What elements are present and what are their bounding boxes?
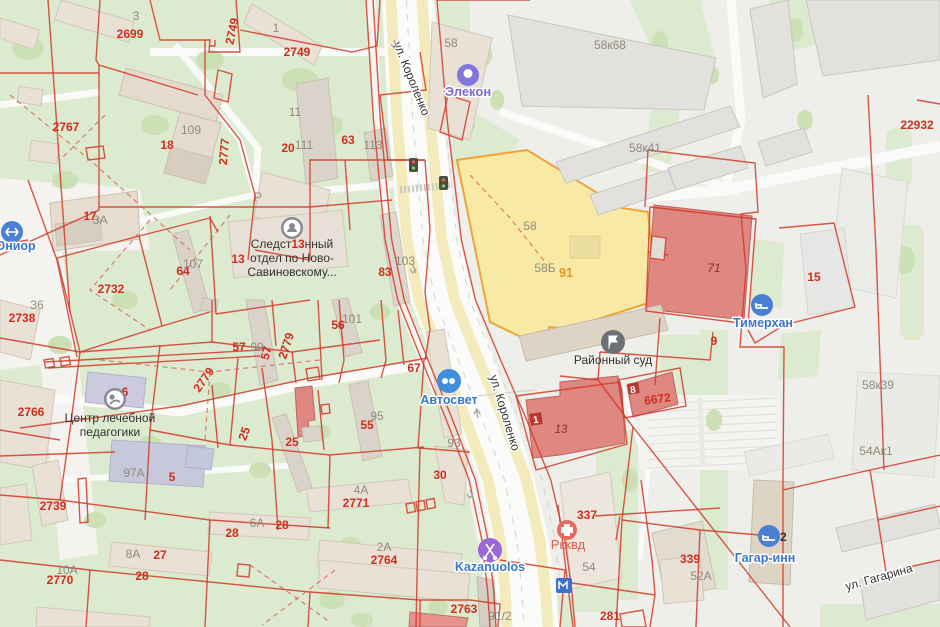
svg-text:103: 103 — [395, 254, 415, 268]
svg-text:2749: 2749 — [284, 45, 311, 59]
svg-text:2764: 2764 — [371, 553, 398, 567]
svg-text:2: 2 — [780, 530, 787, 544]
svg-text:4А: 4А — [354, 483, 369, 497]
svg-text:11: 11 — [289, 105, 302, 119]
svg-text:101: 101 — [342, 312, 362, 326]
svg-text:Савиновскому...: Савиновскому... — [247, 265, 336, 279]
svg-text:95: 95 — [370, 409, 384, 423]
svg-text:13: 13 — [231, 252, 245, 266]
svg-text:58к39: 58к39 — [862, 378, 894, 392]
svg-text:54: 54 — [582, 560, 596, 574]
svg-text:281: 281 — [600, 609, 620, 623]
svg-text:Гагар-инн: Гагар-инн — [735, 551, 796, 565]
svg-text:93: 93 — [447, 436, 461, 450]
svg-text:58Б: 58Б — [534, 261, 555, 275]
svg-text:113: 113 — [363, 138, 382, 152]
svg-text:15: 15 — [807, 270, 821, 284]
svg-text:58: 58 — [523, 219, 537, 233]
svg-text:2767: 2767 — [53, 120, 80, 134]
svg-text:2771: 2771 — [343, 496, 370, 510]
svg-text:2А: 2А — [377, 540, 392, 554]
svg-text:28: 28 — [225, 526, 239, 540]
svg-text:2699: 2699 — [117, 27, 144, 41]
svg-text:Р: Р — [254, 190, 262, 204]
svg-text:отдел по Ново-: отдел по Ново- — [250, 251, 334, 265]
svg-text:Центр лечебной: Центр лечебной — [65, 411, 156, 425]
svg-text:3: 3 — [133, 9, 140, 23]
svg-text:6А: 6А — [250, 516, 265, 530]
svg-text:28: 28 — [135, 569, 149, 583]
svg-text:20: 20 — [281, 141, 295, 155]
svg-text:22932: 22932 — [900, 118, 934, 132]
svg-text:2739: 2739 — [40, 499, 67, 513]
svg-text:111: 111 — [295, 138, 314, 152]
svg-text:107: 107 — [183, 257, 203, 271]
svg-text:339: 339 — [680, 552, 700, 566]
svg-text:71: 71 — [707, 261, 720, 275]
svg-text:83: 83 — [378, 265, 392, 279]
svg-text:91/2: 91/2 — [488, 609, 512, 623]
svg-text:Элекон: Элекон — [445, 84, 491, 99]
svg-text:Юниор: Юниор — [0, 239, 36, 253]
svg-text:109: 109 — [181, 123, 201, 137]
svg-text:Kazanuolos: Kazanuolos — [455, 560, 525, 574]
svg-text:28: 28 — [275, 518, 289, 532]
svg-text:Автосвет: Автосвет — [420, 393, 477, 407]
svg-text:Следст13нный: Следст13нный — [251, 237, 334, 251]
svg-text:Районный суд: Районный суд — [574, 353, 652, 367]
svg-text:67: 67 — [407, 361, 421, 375]
svg-text:30: 30 — [433, 468, 447, 482]
svg-text:97А: 97А — [123, 466, 144, 480]
svg-text:58к41: 58к41 — [629, 141, 661, 155]
svg-text:2738: 2738 — [9, 311, 36, 325]
svg-text:10А: 10А — [56, 563, 77, 577]
svg-text:ЗА: ЗА — [92, 213, 107, 227]
svg-text:13: 13 — [555, 424, 568, 436]
svg-text:91: 91 — [559, 266, 573, 280]
svg-text:54Ак1: 54Ак1 — [859, 444, 893, 458]
svg-text:58к68: 58к68 — [594, 38, 626, 52]
svg-text:27: 27 — [153, 548, 167, 562]
svg-text:Ркквд: Ркквд — [551, 537, 586, 552]
svg-text:58: 58 — [444, 36, 458, 50]
svg-text:63: 63 — [341, 133, 355, 147]
svg-text:25: 25 — [285, 435, 299, 449]
svg-text:57: 57 — [232, 340, 246, 354]
svg-text:2777: 2777 — [216, 137, 232, 165]
svg-text:2763: 2763 — [451, 602, 478, 616]
svg-text:52А: 52А — [690, 569, 711, 583]
svg-text:36: 36 — [30, 298, 44, 312]
svg-text:2766: 2766 — [18, 405, 45, 419]
svg-text:педагогики: педагогики — [80, 425, 140, 439]
svg-text:1: 1 — [273, 21, 280, 35]
svg-text:8А: 8А — [126, 547, 141, 561]
svg-text:5: 5 — [169, 470, 176, 484]
svg-text:9: 9 — [711, 334, 718, 348]
svg-text:Тимерхан: Тимерхан — [733, 316, 793, 330]
svg-text:18: 18 — [160, 138, 174, 152]
svg-text:337: 337 — [577, 508, 597, 522]
svg-text:2732: 2732 — [98, 282, 125, 296]
